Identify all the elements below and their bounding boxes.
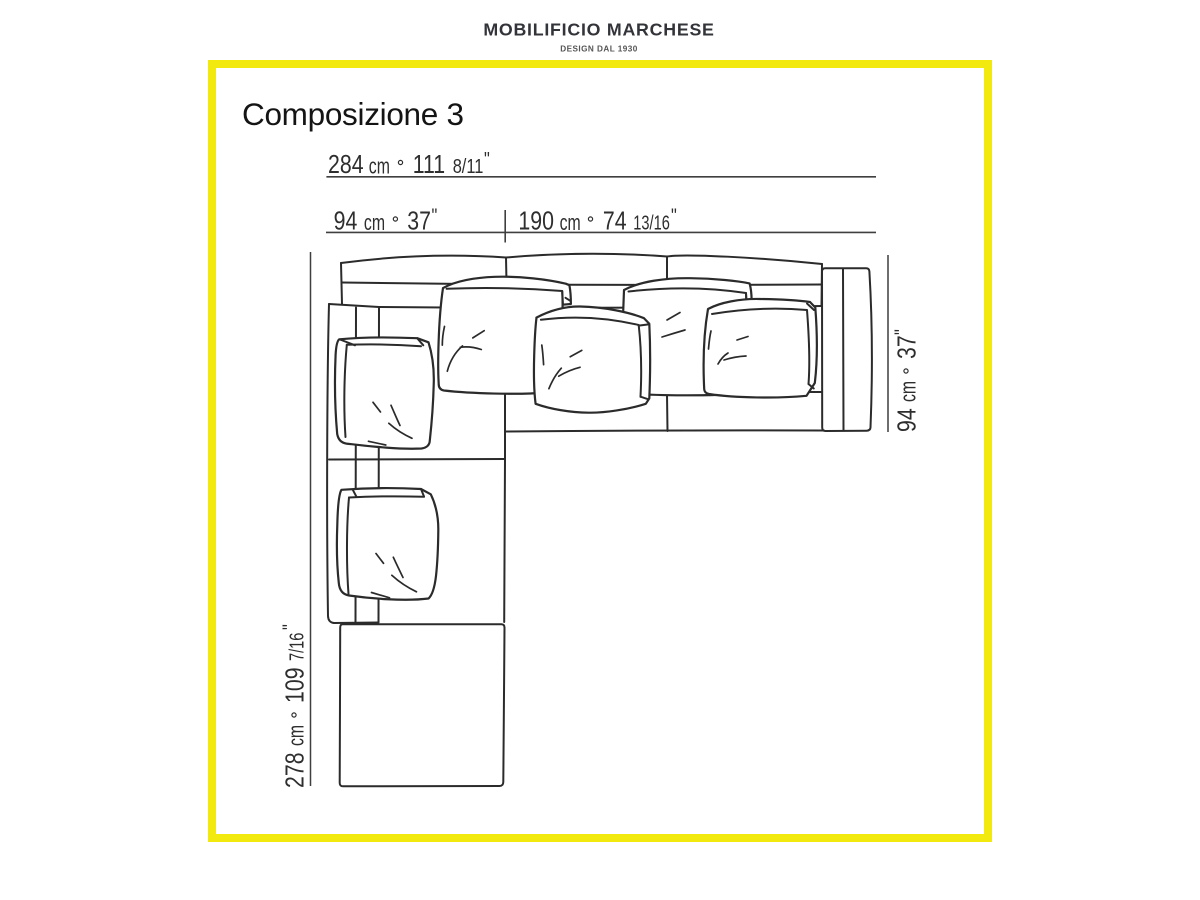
svg-text:8/11: 8/11 — [453, 154, 484, 177]
svg-text:37: 37 — [893, 335, 923, 359]
svg-text:284: 284 — [328, 150, 364, 180]
svg-text:cm: cm — [897, 381, 921, 402]
svg-text:Composizione 3: Composizione 3 — [242, 96, 464, 132]
svg-text:cm: cm — [285, 725, 309, 746]
svg-text:109: 109 — [281, 667, 311, 703]
svg-text:94: 94 — [893, 408, 923, 432]
svg-text:": " — [484, 147, 490, 170]
svg-text:MOBILIFICIO MARCHESE: MOBILIFICIO MARCHESE — [483, 20, 714, 40]
svg-text:": " — [671, 204, 677, 227]
svg-text:13/16: 13/16 — [633, 211, 670, 234]
svg-text:": " — [890, 329, 913, 335]
svg-text:cm: cm — [369, 155, 390, 179]
svg-text:": " — [278, 624, 301, 630]
svg-text:": " — [432, 204, 438, 227]
svg-text:7/16: 7/16 — [285, 633, 308, 661]
svg-text:111: 111 — [413, 150, 445, 180]
svg-text:278: 278 — [281, 752, 311, 788]
svg-text:DESIGN DAL 1930: DESIGN DAL 1930 — [560, 45, 638, 54]
